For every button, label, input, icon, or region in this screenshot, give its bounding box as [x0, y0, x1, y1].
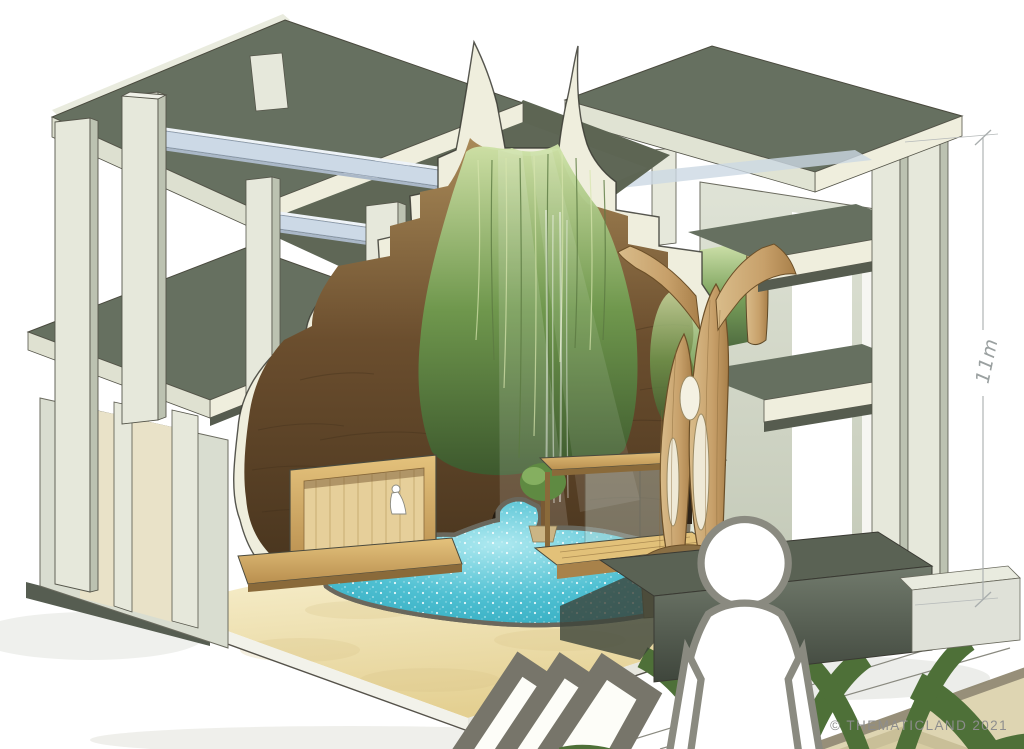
- corner-column-side: [90, 118, 98, 592]
- tall-column: [122, 92, 158, 424]
- wall-panel-2: [132, 418, 172, 622]
- copyright-credit: © THEMATICLAND 2021: [830, 718, 1008, 733]
- corner-column: [55, 118, 90, 592]
- illustration-canvas: 11m © THEMATICLAND 2021: [0, 0, 1024, 749]
- wall-column: [114, 402, 132, 612]
- dimension-label: 11m: [972, 336, 1003, 385]
- wall-column-2: [172, 410, 198, 628]
- tall-column-side: [158, 92, 166, 420]
- pavilion-post: [545, 472, 550, 553]
- side-plinth-front: [912, 578, 1020, 652]
